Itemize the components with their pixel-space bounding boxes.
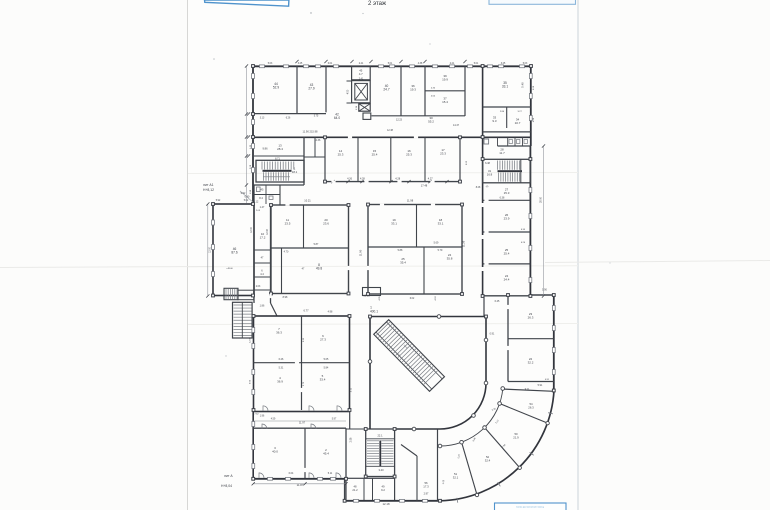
svg-text:6.02: 6.02 xyxy=(410,298,415,300)
svg-text:19.9: 19.9 xyxy=(442,78,448,82)
svg-text:87.6: 87.6 xyxy=(231,251,237,255)
svg-text:21.2: 21.2 xyxy=(352,488,358,492)
svg-text:1.86: 1.86 xyxy=(260,305,265,308)
svg-text:4.59: 4.59 xyxy=(271,419,276,421)
svg-text:6.04: 6.04 xyxy=(289,472,294,475)
svg-text:23.5: 23.5 xyxy=(285,222,291,226)
svg-text:16.8: 16.8 xyxy=(487,173,493,177)
svg-text:23.3: 23.3 xyxy=(440,152,446,156)
svg-text:4.38: 4.38 xyxy=(418,63,423,65)
svg-text:0.40: 0.40 xyxy=(245,196,250,199)
svg-text:28.4: 28.4 xyxy=(277,147,283,151)
svg-text:3.25: 3.25 xyxy=(501,63,506,65)
svg-text:9.86: 9.86 xyxy=(262,147,268,151)
svg-text:8.28: 8.28 xyxy=(476,187,481,189)
svg-text:64.0: 64.0 xyxy=(334,116,340,120)
svg-text:5.87: 5.87 xyxy=(314,243,319,246)
svg-text:Н+8,04: Н+8,04 xyxy=(221,484,232,488)
svg-text:5.92: 5.92 xyxy=(216,200,221,202)
svg-text:4.26: 4.26 xyxy=(347,178,352,181)
svg-text:10.7: 10.7 xyxy=(515,121,521,125)
svg-text:2.21: 2.21 xyxy=(450,63,455,65)
svg-text:26.3: 26.3 xyxy=(528,316,534,320)
svg-text:5.90: 5.90 xyxy=(542,289,547,292)
svg-text:33.4: 33.4 xyxy=(320,378,326,382)
svg-text:9.21: 9.21 xyxy=(525,389,530,391)
svg-text:2 этаж: 2 этаж xyxy=(368,1,386,7)
svg-text:5.01: 5.01 xyxy=(388,63,393,65)
svg-text:2.41: 2.41 xyxy=(359,79,364,81)
svg-text:(4): (4) xyxy=(486,186,489,188)
svg-text:15.3: 15.3 xyxy=(504,191,510,195)
svg-text:4.98: 4.98 xyxy=(328,311,333,314)
svg-text:Н+8,12: Н+8,12 xyxy=(203,188,214,192)
svg-text:24.4: 24.4 xyxy=(504,278,510,282)
svg-text:55.2: 55.2 xyxy=(428,120,434,124)
svg-text:15.4: 15.4 xyxy=(442,100,448,104)
svg-text:33.1: 33.1 xyxy=(438,222,444,226)
svg-text:21.9: 21.9 xyxy=(513,436,519,440)
svg-text:25.3: 25.3 xyxy=(338,153,344,157)
svg-text:4.70: 4.70 xyxy=(284,250,289,253)
svg-text:49.8: 49.8 xyxy=(316,267,322,271)
svg-text:45.4: 45.4 xyxy=(323,452,329,456)
svg-text:23.9: 23.9 xyxy=(504,217,510,221)
svg-text:2.36: 2.36 xyxy=(316,139,321,142)
svg-text:2.41: 2.41 xyxy=(359,63,364,65)
svg-text:28.06: 28.06 xyxy=(540,196,542,202)
svg-text:27.3: 27.3 xyxy=(320,338,326,342)
svg-text:0.91: 0.91 xyxy=(490,333,495,336)
svg-text:9.2: 9.2 xyxy=(381,488,385,492)
svg-text:18.1: 18.1 xyxy=(292,170,298,174)
svg-text:8.71: 8.71 xyxy=(275,157,280,160)
svg-text:9.92: 9.92 xyxy=(241,192,246,195)
svg-text:10.21: 10.21 xyxy=(304,198,311,202)
svg-text:12.00: 12.00 xyxy=(209,246,211,252)
svg-text:5.05: 5.05 xyxy=(324,358,329,361)
svg-text:12.23: 12.23 xyxy=(396,119,403,122)
svg-text:2.08: 2.08 xyxy=(350,437,353,442)
svg-text:22.1: 22.1 xyxy=(377,434,383,438)
svg-text:лит А: лит А xyxy=(224,474,233,478)
svg-text:5.79: 5.79 xyxy=(438,249,443,252)
svg-text:3.25: 3.25 xyxy=(298,63,303,65)
svg-text:3.13: 3.13 xyxy=(260,118,265,120)
svg-text:8.98: 8.98 xyxy=(283,296,288,299)
svg-text:25.4: 25.4 xyxy=(372,153,378,157)
svg-text:3.75: 3.75 xyxy=(314,116,319,118)
svg-text:5.31: 5.31 xyxy=(279,366,284,369)
svg-text:лит А1: лит А1 xyxy=(203,183,214,187)
svg-text:2.97: 2.97 xyxy=(424,493,429,496)
svg-text:32.1: 32.1 xyxy=(453,476,459,480)
svg-text:14.47: 14.47 xyxy=(453,124,460,127)
svg-text:49: 49 xyxy=(382,485,385,489)
svg-text:52.9: 52.9 xyxy=(273,86,279,90)
svg-text:11.97: 11.97 xyxy=(299,421,306,424)
svg-text:5.03: 5.03 xyxy=(268,63,273,65)
svg-text:12.00: 12.00 xyxy=(251,226,253,232)
svg-text:12.18: 12.18 xyxy=(383,502,390,506)
svg-text:5.03: 5.03 xyxy=(523,63,528,65)
svg-text:6.26: 6.26 xyxy=(279,358,284,361)
svg-text:400.1: 400.1 xyxy=(370,310,378,314)
svg-text:35.4: 35.4 xyxy=(400,261,406,265)
svg-text:36.9: 36.9 xyxy=(277,380,283,384)
svg-text:23.6: 23.6 xyxy=(323,222,329,226)
svg-text:48: 48 xyxy=(354,485,357,489)
svg-text:5.91: 5.91 xyxy=(538,384,543,387)
svg-text:8.4: 8.4 xyxy=(259,196,263,200)
svg-text:11.7: 11.7 xyxy=(499,151,505,155)
svg-text:6.26: 6.26 xyxy=(286,118,291,120)
svg-text:5.40: 5.40 xyxy=(521,82,525,88)
svg-text:6.38: 6.38 xyxy=(500,197,505,200)
svg-text:6.77: 6.77 xyxy=(303,309,309,313)
svg-text:35.8: 35.8 xyxy=(447,257,453,261)
svg-text:4.7: 4.7 xyxy=(359,72,363,76)
svg-text:5.01: 5.01 xyxy=(474,63,479,65)
svg-text:9.3: 9.3 xyxy=(492,119,497,123)
svg-text:6.01: 6.01 xyxy=(328,63,333,65)
svg-text:5.97: 5.97 xyxy=(332,419,337,421)
svg-text:19.3: 19.3 xyxy=(410,88,416,92)
svg-text:1.47: 1.47 xyxy=(260,206,265,209)
svg-text:12.38: 12.38 xyxy=(387,130,393,132)
svg-text:4.50: 4.50 xyxy=(348,89,350,94)
svg-text:25.3: 25.3 xyxy=(406,153,412,157)
svg-text:6.45: 6.45 xyxy=(495,300,500,303)
svg-text:6.48: 6.48 xyxy=(485,162,490,165)
svg-text:33.1: 33.1 xyxy=(502,85,508,89)
svg-text:17.2: 17.2 xyxy=(260,236,266,240)
svg-text:26.3: 26.3 xyxy=(528,406,534,410)
svg-text:Схема расположения помещ: Схема расположения помещ xyxy=(516,506,544,508)
svg-text:11.98: 11.98 xyxy=(407,198,414,202)
svg-text:11.90: 11.90 xyxy=(359,249,363,256)
svg-text:11.90 215.98: 11.90 215.98 xyxy=(303,129,319,133)
svg-text:5.11: 5.11 xyxy=(328,472,333,475)
svg-text:12.06: 12.06 xyxy=(250,336,252,342)
svg-text:+48.06: +48.06 xyxy=(226,268,233,270)
svg-text:2.03: 2.03 xyxy=(256,286,261,288)
svg-text:5.69: 5.69 xyxy=(434,242,439,245)
svg-text:17.48: 17.48 xyxy=(421,183,428,187)
svg-text:36.3: 36.3 xyxy=(276,331,282,335)
svg-text:33.1: 33.1 xyxy=(391,222,397,226)
svg-text:25.4: 25.4 xyxy=(504,252,510,256)
svg-text:5.84: 5.84 xyxy=(324,366,329,369)
svg-text:3.40: 3.40 xyxy=(378,468,384,472)
svg-text:1.96: 1.96 xyxy=(260,415,265,417)
svg-text:4.28: 4.28 xyxy=(395,178,400,181)
svg-text:32.2: 32.2 xyxy=(528,361,534,365)
svg-text:4.4: 4.4 xyxy=(260,273,264,276)
svg-text:17.3: 17.3 xyxy=(423,485,429,489)
svg-text:24.7: 24.7 xyxy=(383,88,389,92)
svg-text:40.0: 40.0 xyxy=(272,450,278,454)
svg-text:4.28: 4.28 xyxy=(360,178,365,181)
svg-text:32.4: 32.4 xyxy=(485,459,491,463)
svg-text:27.9: 27.9 xyxy=(308,87,314,91)
svg-text:5.88: 5.88 xyxy=(398,249,403,252)
svg-text:12.06: 12.06 xyxy=(267,228,269,234)
svg-text:4.27: 4.27 xyxy=(428,178,433,181)
